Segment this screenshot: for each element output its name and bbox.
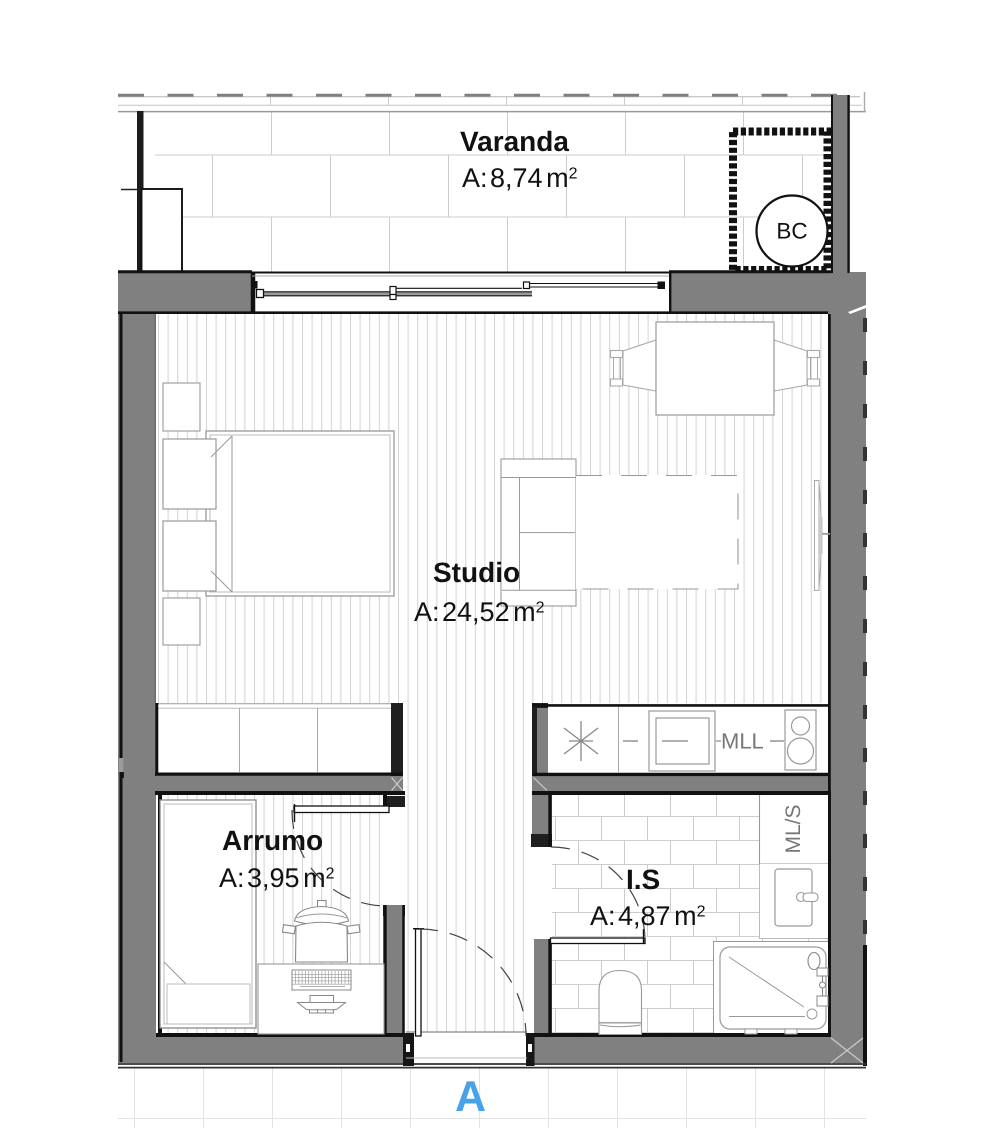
svg-text:ML/S: ML/S <box>782 804 805 853</box>
svg-text:A:4,87m2: A:4,87m2 <box>590 901 706 931</box>
svg-text:A:24,52m2: A:24,52m2 <box>414 597 545 627</box>
svg-text:MLL: MLL <box>721 729 764 754</box>
svg-text:BC: BC <box>776 219 807 244</box>
svg-text:A: A <box>455 1073 486 1121</box>
svg-text:I.S: I.S <box>626 864 660 895</box>
svg-text:A:3,95m2: A:3,95m2 <box>219 863 335 893</box>
svg-text:Studio: Studio <box>433 557 520 588</box>
svg-text:Varanda: Varanda <box>460 126 569 157</box>
svg-text:A:8,74m2: A:8,74m2 <box>462 163 578 193</box>
svg-text:Arrumo: Arrumo <box>222 825 323 856</box>
